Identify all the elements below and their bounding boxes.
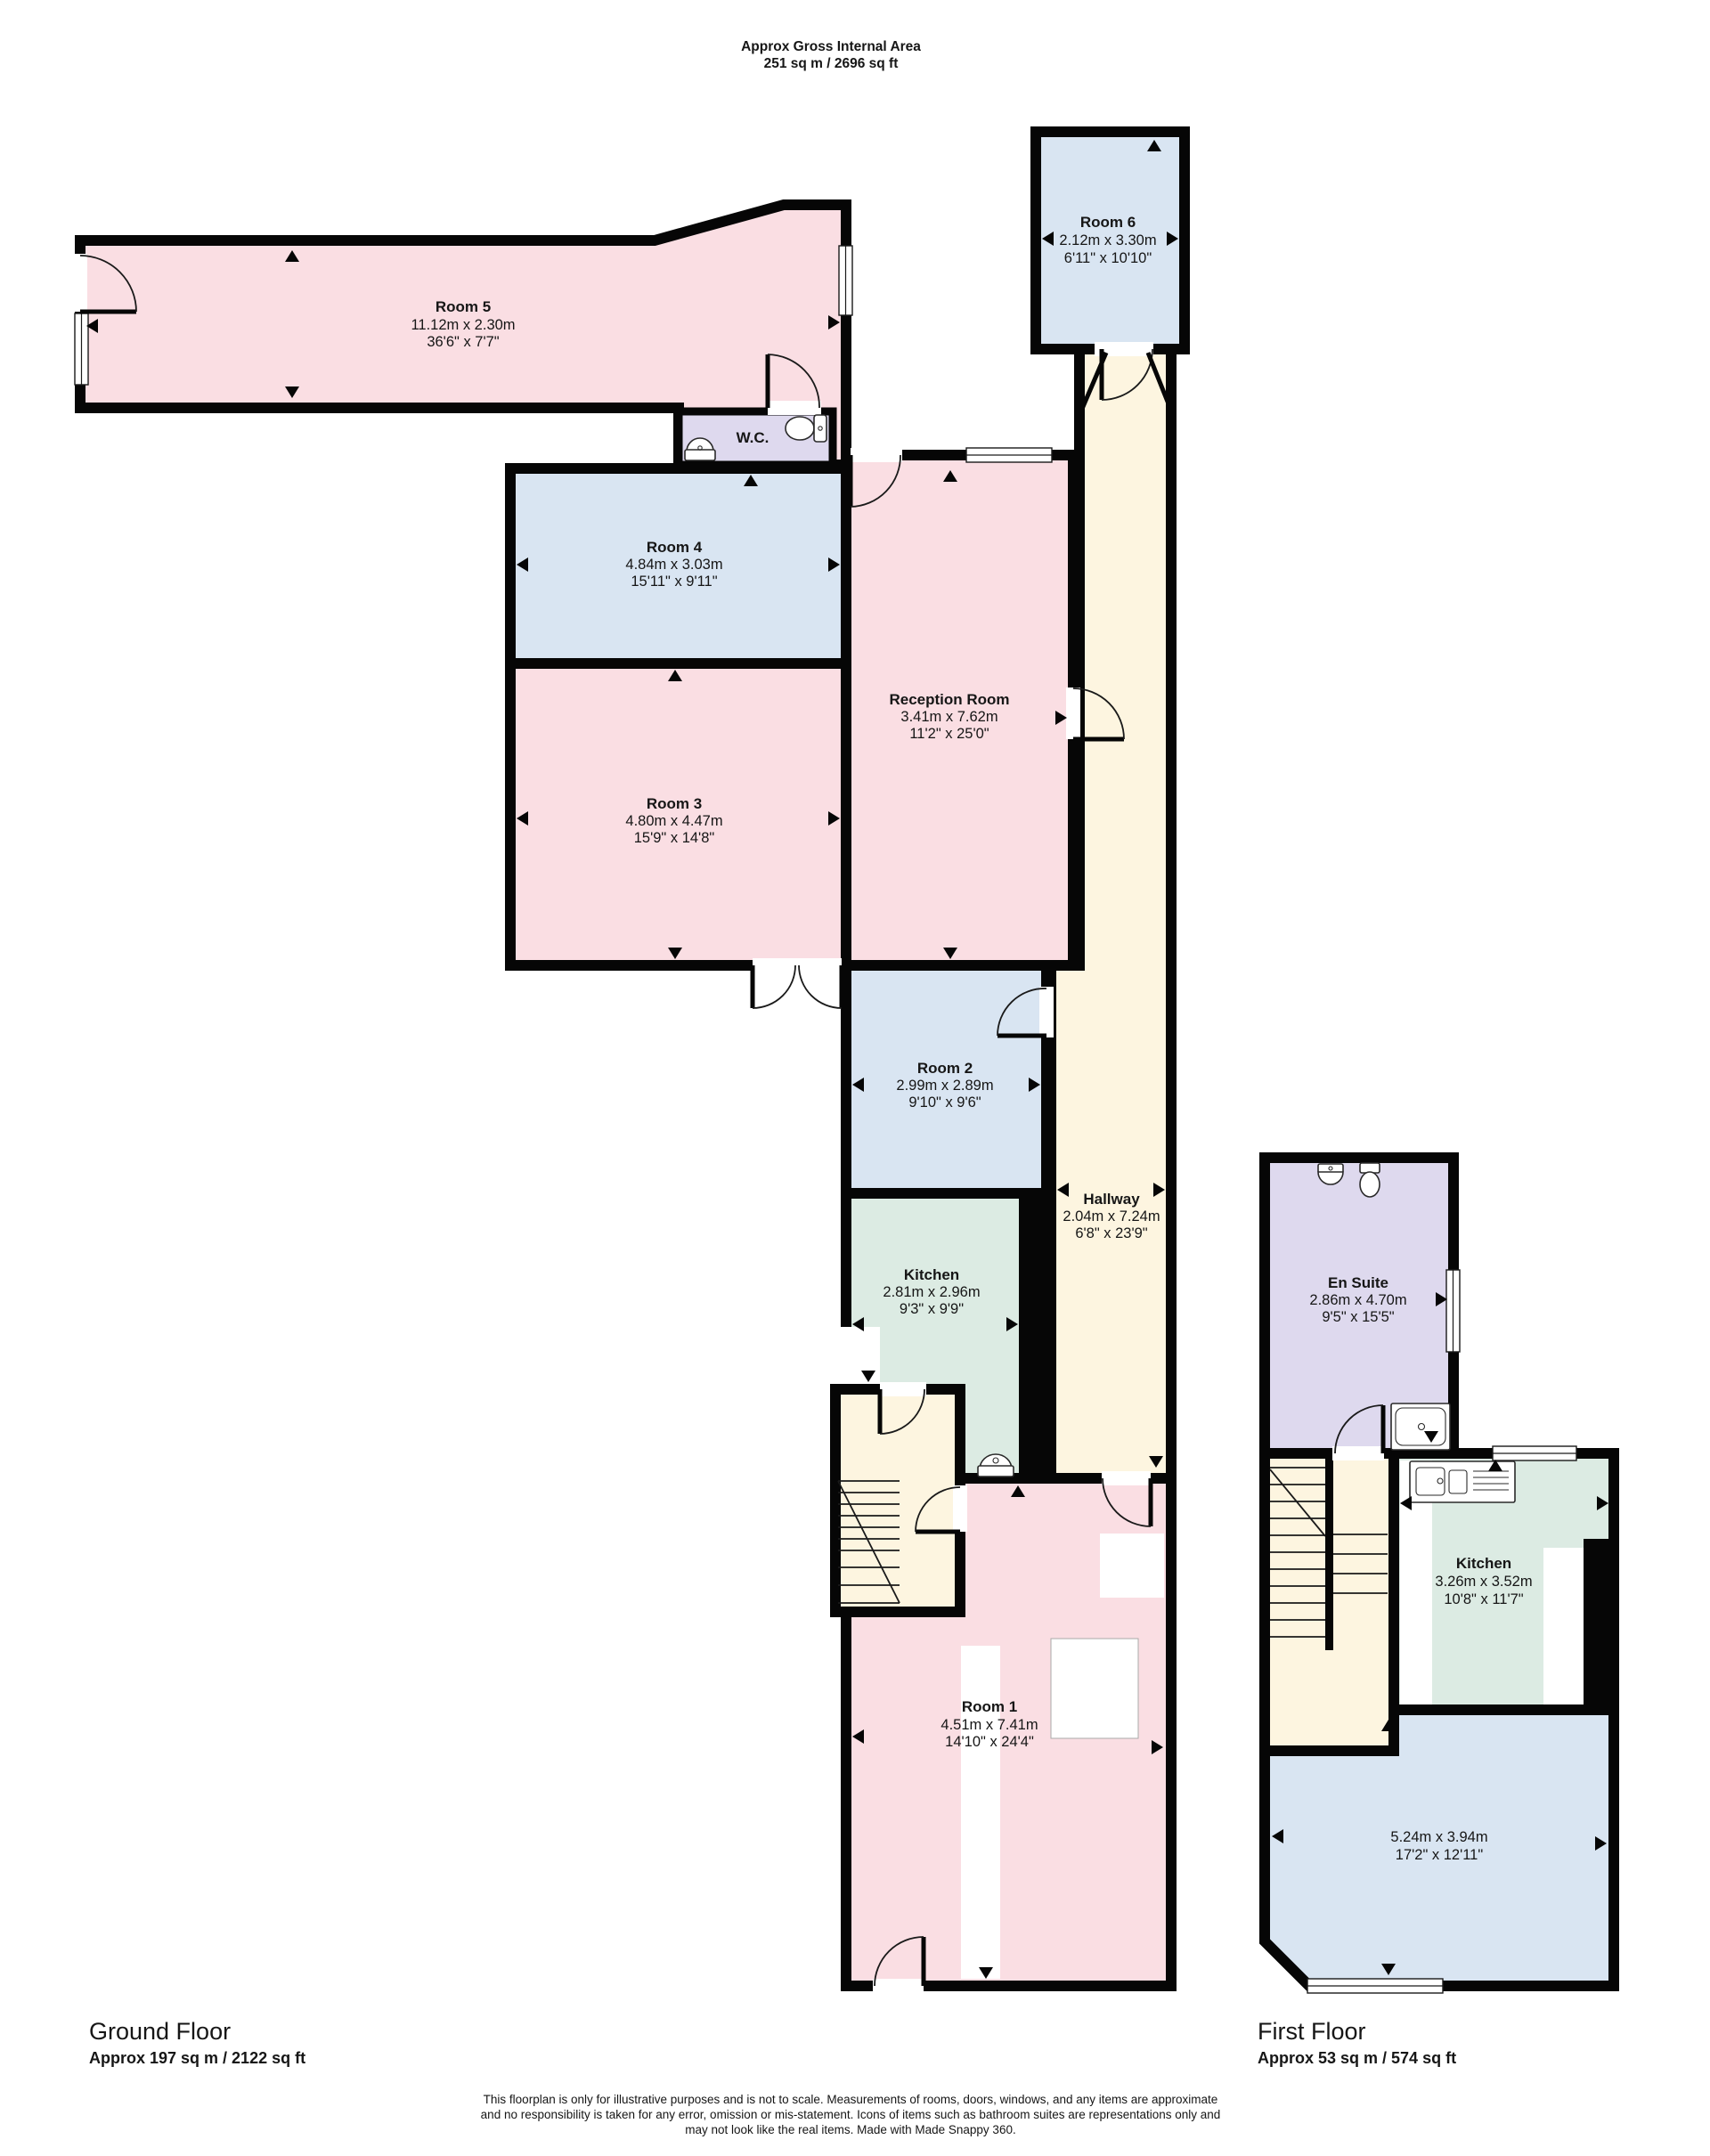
- kitchen-ff-metric-label: 3.26m x 3.52m: [1435, 1574, 1532, 1590]
- room2-imperial-label: 9'10" x 9'6": [908, 1094, 981, 1111]
- door-gap: [768, 401, 821, 415]
- room3-imperial-label: 15'9" x 14'8": [634, 830, 715, 846]
- stair-divider-wall: [1325, 1459, 1333, 1650]
- door-gap: [74, 254, 87, 312]
- room3-metric-label: 4.80m x 4.47m: [625, 813, 722, 829]
- room1-void-strip: [961, 1646, 1000, 1979]
- room3-name-label: Room 3: [647, 795, 702, 812]
- room5-metric-label: 11.12m x 2.30m: [411, 317, 515, 333]
- door-gap: [851, 448, 902, 462]
- wc-name-label: W.C.: [737, 429, 769, 446]
- first-floor-area: Approx 53 sq m / 574 sq ft: [1258, 2049, 1456, 2067]
- kitchen-gf-recess: [841, 1327, 880, 1386]
- room5-imperial-label: 36'6" x 7'7": [427, 334, 499, 350]
- kitchen-ff-counter: [1543, 1548, 1584, 1704]
- window: [1493, 1446, 1576, 1460]
- door-gap: [953, 1485, 967, 1532]
- room5-name-label: Room 5: [436, 298, 491, 315]
- kitchen-ff-imperial-label: 10'8" x 11'7": [1444, 1591, 1523, 1607]
- gross-area-value: 251 sq m / 2696 sq ft: [764, 56, 899, 71]
- window: [1307, 1979, 1443, 1993]
- door-gap: [1066, 687, 1080, 739]
- hallway-imperial-label: 6'8" x 23'9": [1075, 1225, 1147, 1241]
- kitchen-hallway-wall: [1022, 1189, 1054, 1483]
- ensuite-metric-label: 2.86m x 4.70m: [1309, 1292, 1406, 1308]
- ensuite-name-label: En Suite: [1328, 1274, 1388, 1291]
- bedroom-ff-imperial-label: 17'2" x 12'11": [1396, 1847, 1484, 1863]
- first-floor-plan: En Suite 2.86m x 4.70m 9'5" x 15'5" Kitc…: [1265, 1158, 1614, 1993]
- hallway-metric-label: 2.04m x 7.24m: [1063, 1208, 1160, 1224]
- window: [75, 313, 88, 385]
- ground-floor-area: Approx 197 sq m / 2122 sq ft: [89, 2049, 305, 2067]
- room2-metric-label: 2.99m x 2.89m: [896, 1078, 993, 1094]
- room6-name-label: Room 6: [1080, 214, 1136, 231]
- reception-name-label: Reception Room: [889, 691, 1009, 708]
- room1-void-box: [1051, 1639, 1138, 1738]
- window: [966, 448, 1052, 462]
- kitchen-gf-metric-label: 2.81m x 2.96m: [883, 1284, 980, 1300]
- room4-name-label: Room 4: [647, 539, 703, 556]
- ground-floor-plan: Room 5 11.12m x 2.30m 36'6" x 7'7" Room …: [74, 132, 1185, 1993]
- room1-imperial-label: 14'10" x 24'4": [945, 1734, 1034, 1750]
- room2-name-label: Room 2: [917, 1060, 973, 1077]
- sink-icon: [1318, 1164, 1343, 1184]
- gross-area-title: Approx Gross Internal Area: [741, 39, 921, 54]
- door-gap: [1332, 1446, 1384, 1460]
- first-floor-title: First Floor: [1258, 2018, 1366, 2045]
- reception-imperial-label: 11'2" x 25'0": [909, 726, 989, 742]
- hallway-name-label: Hallway: [1083, 1191, 1140, 1208]
- room1-door-landing: [1100, 1534, 1164, 1598]
- door-gap: [873, 1979, 924, 1993]
- room4-imperial-label: 15'11" x 9'11": [631, 574, 717, 590]
- kitchen-gf-imperial-label: 9'3" x 9'9": [900, 1301, 964, 1317]
- ensuite-imperial-label: 9'5" x 15'5": [1322, 1309, 1394, 1325]
- door-gap: [1039, 987, 1054, 1037]
- toilet-icon: [1360, 1163, 1380, 1197]
- room1-name-label: Room 1: [962, 1698, 1017, 1715]
- inset-wall: [1584, 1539, 1614, 1713]
- window: [839, 246, 852, 315]
- disclaimer-line-2: and no responsibility is taken for any e…: [481, 2108, 1221, 2121]
- disclaimer-line-1: This floorplan is only for illustrative …: [484, 2093, 1218, 2106]
- stair-lobby-floor: [835, 1389, 960, 1612]
- door-gap: [1102, 1471, 1151, 1485]
- ground-floor-title: Ground Floor: [89, 2018, 231, 2045]
- shower-icon: [1391, 1403, 1450, 1450]
- toilet-icon: [786, 415, 826, 442]
- door-gap: [753, 958, 842, 972]
- floorplan-canvas: Approx Gross Internal Area 251 sq m / 26…: [0, 0, 1710, 2156]
- kitchen-ff-name-label: Kitchen: [1456, 1555, 1511, 1572]
- window: [1446, 1270, 1460, 1352]
- room6-imperial-label: 6'11" x 10'10": [1064, 250, 1152, 266]
- door-gap: [880, 1382, 926, 1396]
- bedroom-ff-metric-label: 5.24m x 3.94m: [1390, 1829, 1487, 1845]
- kitchen-gf-name-label: Kitchen: [904, 1266, 959, 1283]
- reception-metric-label: 3.41m x 7.62m: [900, 709, 997, 725]
- disclaimer-line-3: may not look like the real items. Made w…: [685, 2123, 1015, 2136]
- room1-metric-label: 4.51m x 7.41m: [940, 1717, 1038, 1733]
- room4-metric-label: 4.84m x 3.03m: [625, 557, 722, 573]
- room6-metric-label: 2.12m x 3.30m: [1059, 232, 1156, 248]
